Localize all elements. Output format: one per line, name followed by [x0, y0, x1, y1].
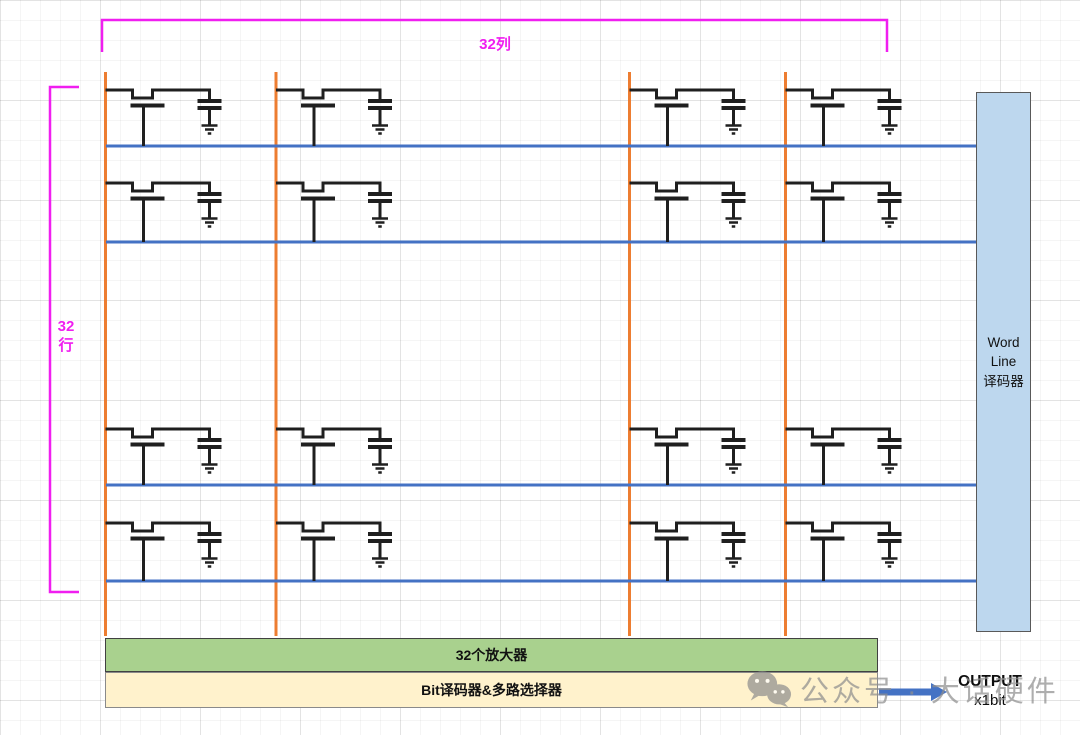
memory-array-circuit	[0, 0, 1080, 735]
column-count-label: 32列	[455, 33, 535, 54]
decoder-line-2: Line	[991, 352, 1017, 372]
memory-cell-r2c2	[276, 183, 392, 242]
output-label: OUTPUT x1bit	[935, 672, 1045, 710]
memory-cell-r2c4	[786, 183, 902, 242]
memory-cell-r3c2	[276, 429, 392, 485]
memory-cell-r1c3	[630, 90, 746, 146]
memory-cell-r2c1	[106, 183, 222, 242]
decoder-line-3: 译码器	[983, 372, 1024, 392]
output-width-text: x1bit	[935, 691, 1045, 710]
memory-cell-r1c2	[276, 90, 392, 146]
memory-cell-r4c4	[786, 523, 902, 581]
sense-amplifier-bar: 32个放大器	[105, 638, 878, 672]
row-count-number: 32	[47, 317, 85, 336]
memory-cell-r1c1	[106, 90, 222, 146]
memory-cell-r4c1	[106, 523, 222, 581]
output-text: OUTPUT	[935, 672, 1045, 691]
memory-cell-r3c4	[786, 429, 902, 485]
memory-cell-r1c4	[786, 90, 902, 146]
row-count-label: 32 行	[47, 317, 85, 355]
memory-cell-r2c3	[630, 183, 746, 242]
dram-array-diagram: 32列 32 行 Word Line 译码器 32个放大器 Bit译码器&多路选…	[0, 0, 1080, 735]
memory-cell-r4c3	[630, 523, 746, 581]
row-count-unit: 行	[47, 336, 85, 355]
memory-cell-r3c1	[106, 429, 222, 485]
memory-cell-r3c3	[630, 429, 746, 485]
word-line-decoder-box: Word Line 译码器	[976, 92, 1031, 632]
memory-cell-r4c2	[276, 523, 392, 581]
bit-decoder-bar: Bit译码器&多路选择器	[105, 672, 878, 708]
bit-decoder-label: Bit译码器&多路选择器	[421, 680, 562, 700]
decoder-line-1: Word	[987, 333, 1019, 353]
sense-amplifier-label: 32个放大器	[456, 645, 528, 665]
